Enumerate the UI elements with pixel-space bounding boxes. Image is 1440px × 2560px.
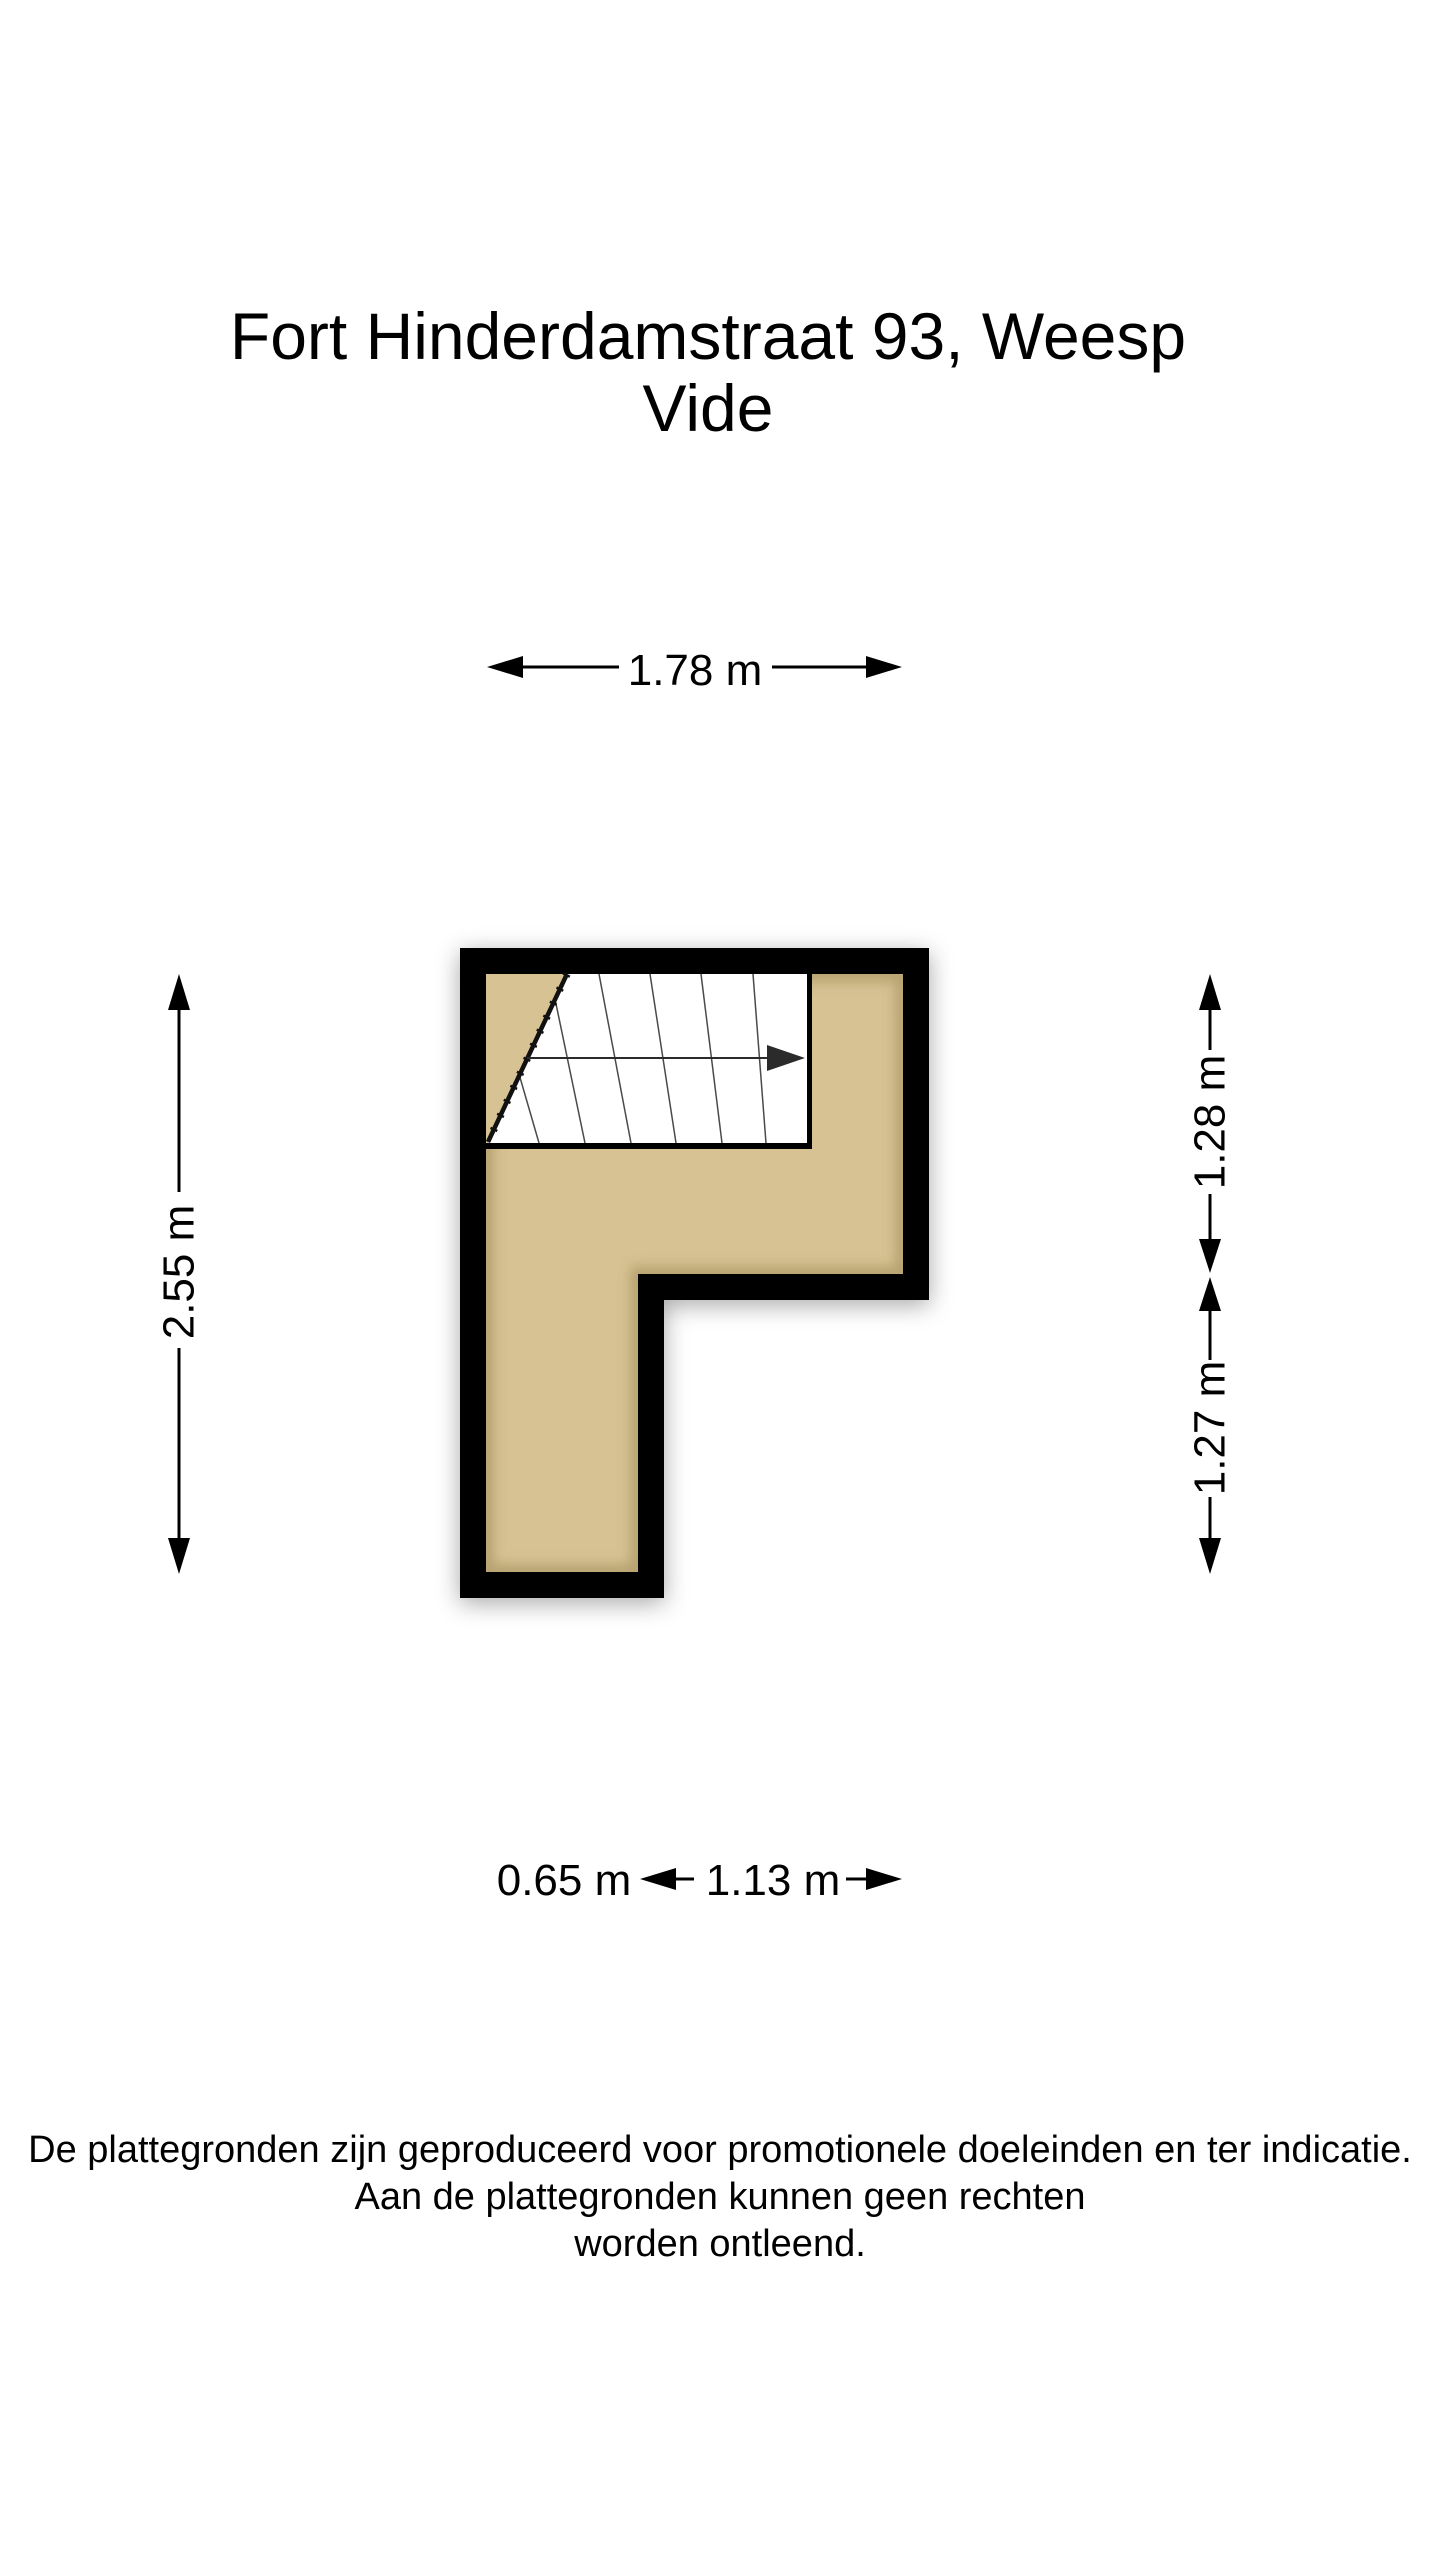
svg-text:Aan de plattegronden kunnen ge: Aan de plattegronden kunnen geen rechten	[354, 2176, 1085, 2218]
svg-text:1.13 m: 1.13 m	[706, 1856, 841, 1905]
svg-text:1.78 m: 1.78 m	[628, 646, 763, 695]
svg-text:2.55 m: 2.55 m	[155, 1205, 204, 1340]
svg-text:De plattegronden zijn geproduc: De plattegronden zijn geproduceerd voor …	[28, 2129, 1412, 2171]
svg-text:Vide: Vide	[643, 371, 774, 445]
svg-text:Fort Hinderdamstraat 93, Weesp: Fort Hinderdamstraat 93, Weesp	[230, 299, 1186, 373]
svg-text:1.28 m: 1.28 m	[1186, 1055, 1235, 1190]
svg-text:1.27 m: 1.27 m	[1186, 1361, 1235, 1496]
svg-text:worden ontleend.: worden ontleend.	[573, 2223, 866, 2265]
svg-text:0.65 m: 0.65 m	[497, 1856, 632, 1905]
